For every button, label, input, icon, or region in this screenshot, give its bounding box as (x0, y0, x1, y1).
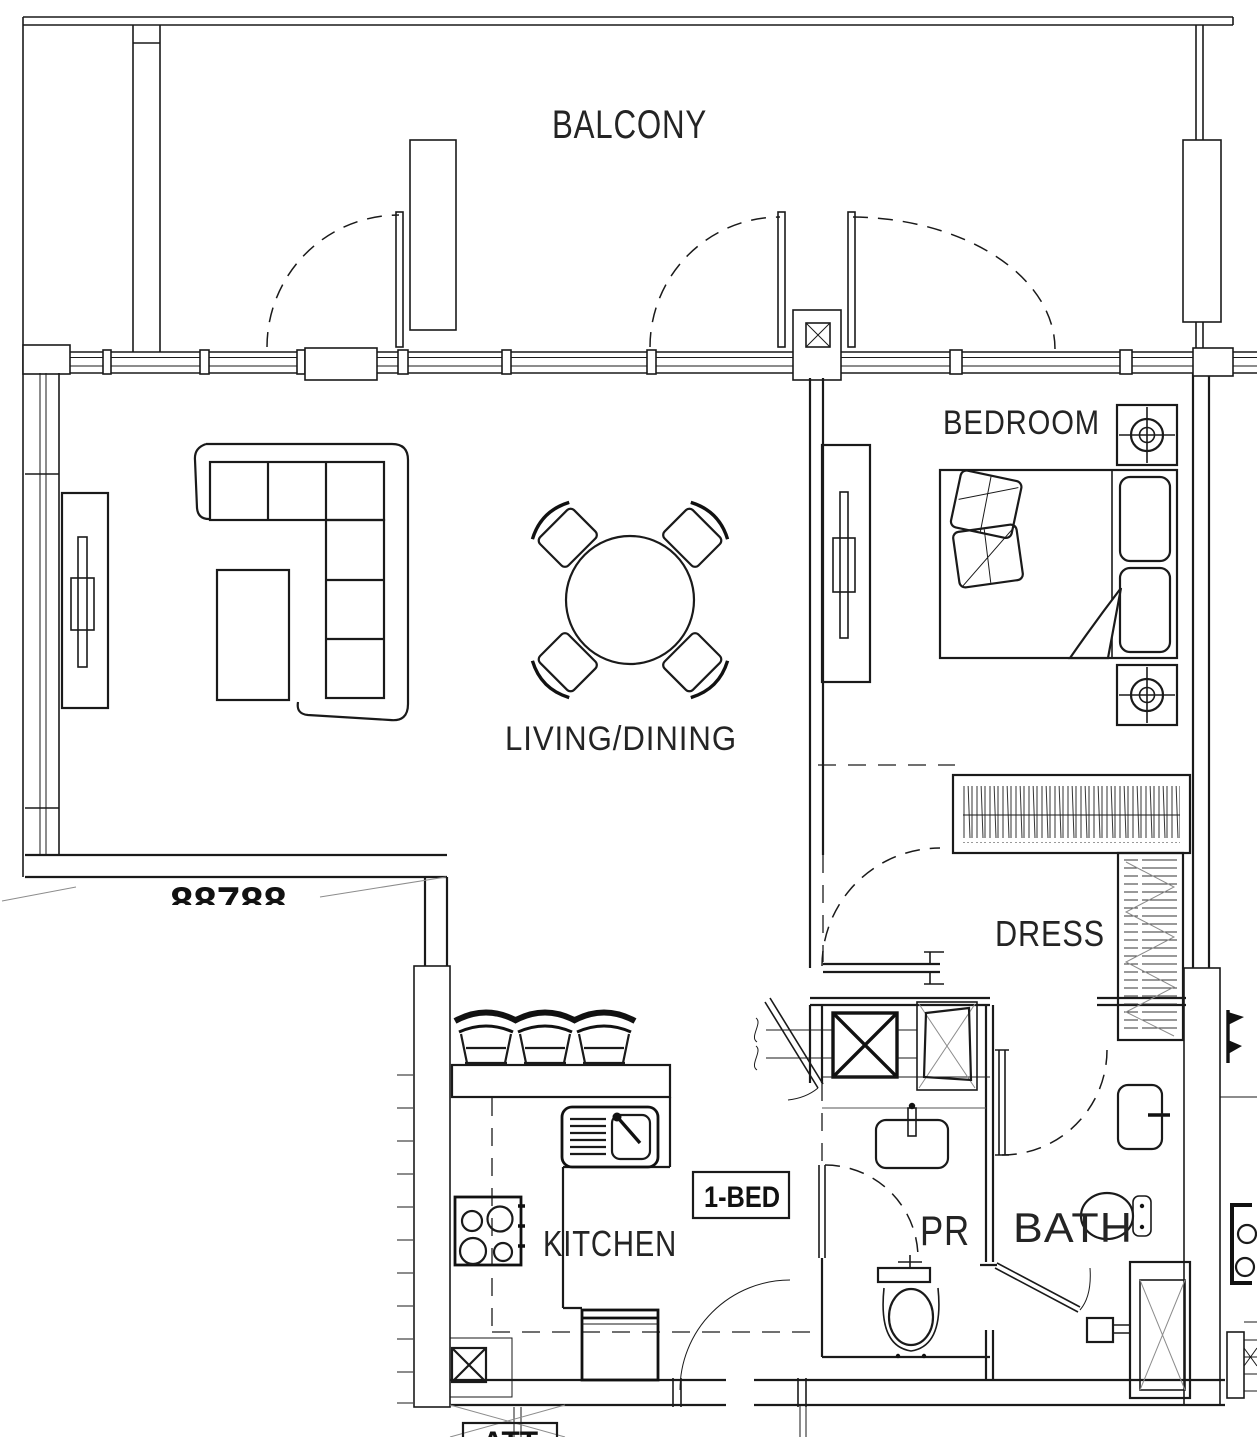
coffee-table (217, 570, 289, 700)
cooktop (455, 1197, 525, 1265)
bar-stool (455, 1013, 517, 1064)
duct-shaft (754, 1013, 990, 1077)
bar-stool (514, 1013, 576, 1064)
round-dining-table (566, 536, 694, 664)
balcony-column-right (1183, 140, 1221, 322)
label-living-dining: LIVING/DINING (505, 720, 737, 758)
balcony-doors (267, 212, 1055, 349)
pillow (1120, 477, 1170, 561)
window-corner-block (23, 345, 70, 374)
room-labels: BALCONY LIVING/DINING BEDROOM DRESS KITC… (505, 103, 1133, 1264)
label-bedroom: BEDROOM (943, 404, 1100, 442)
bath-shaft (1130, 1262, 1190, 1398)
door-leaf (396, 212, 403, 347)
dining-chair (527, 630, 600, 703)
right-edge-fragments (1220, 1010, 1257, 1398)
nightstand-bottom (1117, 665, 1177, 725)
bar-stools (455, 1013, 635, 1064)
pr-door (819, 1165, 918, 1258)
wardrobe-side (1118, 853, 1183, 1040)
label-bath: BATH (1013, 1204, 1133, 1251)
south-wall (450, 1380, 1225, 1405)
pr-toilet (878, 1255, 939, 1358)
double-bed (940, 469, 1177, 658)
unit-type-label: 1-BED (693, 1172, 789, 1218)
door-swing-arc (267, 215, 399, 347)
central-pier (793, 310, 841, 380)
floor-plan-canvas: 88788 ATT BALCONY LIVING/DINING BEDROOM … (0, 0, 1257, 1437)
window-wall (23, 310, 1257, 855)
refrigerator (582, 1310, 658, 1380)
neighbor-unit-clipped-text: 88788 (170, 878, 287, 925)
tv-unit-bedroom (822, 445, 870, 682)
bath-door (995, 1050, 1107, 1155)
door-swing-arc (853, 217, 1055, 349)
window-pier (305, 348, 377, 380)
bottom-clipped-text: ATT (482, 1426, 538, 1437)
label-balcony: BALCONY (552, 103, 707, 147)
pillow (1120, 568, 1170, 652)
pr-sink (876, 1103, 948, 1168)
tv-unit-living (62, 493, 108, 708)
door-leaf (778, 212, 785, 347)
nightstand-top (1117, 405, 1177, 465)
kitchen-west-wall (414, 966, 450, 1407)
bar-stool (573, 1013, 635, 1064)
dining-set (527, 497, 732, 702)
dining-chair (660, 630, 733, 703)
kitchen-sink (562, 1107, 658, 1167)
label-kitchen: KITCHEN (543, 1223, 677, 1264)
sectional-sofa (195, 444, 408, 720)
bedroom (822, 405, 1177, 984)
bath-sink (1118, 1085, 1170, 1149)
unit-type-text: 1-BED (704, 1181, 780, 1214)
floor-plan-page: 88788 ATT BALCONY LIVING/DINING BEDROOM … (0, 0, 1257, 1437)
living-dining-room (62, 444, 733, 720)
label-pr: PR (920, 1207, 970, 1254)
clipped-fragments: 88788 ATT (2, 877, 1257, 1437)
balcony-column-left (410, 140, 456, 330)
kitchen-shaft (450, 1338, 512, 1397)
entrance-door (680, 1280, 790, 1390)
dining-chair (660, 497, 733, 570)
dining-chair (527, 497, 600, 570)
bedroom-door (822, 848, 944, 984)
interior-walls (397, 378, 1225, 1437)
door-swing-arc (650, 217, 780, 347)
label-dress: DRESS (995, 913, 1105, 954)
door-leaf (848, 212, 855, 347)
hall-door (765, 998, 823, 1100)
wardrobe-top (953, 775, 1190, 853)
blanket-fold (1070, 588, 1121, 658)
shower (980, 1263, 1130, 1342)
